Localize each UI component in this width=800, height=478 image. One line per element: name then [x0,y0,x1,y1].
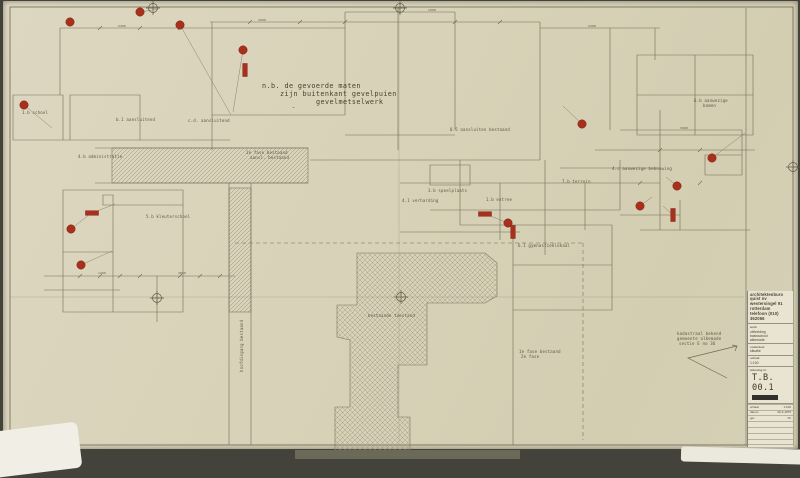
revision-row-label: schaal [750,406,759,409]
drawing-label: 6.1 gymnastieklokaal [518,244,570,249]
drawing-labels: b.1 aansluitendc.d. aansluitend1.b schoo… [0,0,800,461]
schaal-value: 1:100 [750,361,791,365]
schaal-field: schaal 1:100 [748,356,793,368]
drawing-label: 1.b school [22,111,48,116]
drawing-label: 1800 [428,8,436,13]
drawing-label: 4.c aanwezige bebouwing [612,167,672,172]
drawing-label: 3600 [258,18,266,23]
drawing-label: hoofdingang bestaand [240,320,245,372]
drawing-label: 5.b kleuterschool [146,215,190,220]
drawing-label: 2e fase [521,355,539,360]
measurement-note: n.b. de gevoerde maten zijn buitenkant g… [262,82,502,114]
title-block-dark-chip [752,395,778,400]
drawing-label: 0.5 aansluiten bestaand [450,128,510,133]
drawing-label: 1.b entree [486,198,512,203]
werk-field: werk uitbreiding basisschool alkemade [748,324,793,344]
werk-value: alkemade [750,338,791,342]
drawing-label: 2400 [588,24,596,29]
torn-corner-bottom-right [681,446,800,464]
drawing-label: aansl. bestaand [250,156,289,161]
note-line: zijn buitenkant gevelpuien [280,90,502,98]
revision-row-value: hb [788,417,791,420]
drawing-label: 1200 [98,271,106,276]
drawing-label: c.d. aansluitend [188,119,230,124]
architect-firm-block: architektenburo quist nv westersingel 91… [748,291,793,324]
note-line: gevelmetselwerk [316,98,502,106]
drawing-label: 3600 [680,126,688,131]
drawing-label: bestaande toestand [368,314,415,319]
drawing-label: 7.b terrein [562,180,591,185]
onderdeel-value: situatie [750,349,791,353]
note-ditto-mark: ″ [292,106,502,114]
revision-row-value: 1:100 [783,406,791,409]
drawing-label: 4800 [178,271,186,276]
revision-row-value: 26-3-1975 [777,411,791,414]
title-block: architektenburo quist nv westersingel 91… [747,291,793,447]
drawing-label: bomen [703,104,716,109]
firm-line: telefoon (010) 362066 [750,312,791,322]
revision-row-label: get. [750,417,755,420]
drawing-label: 2400 [118,24,126,29]
onderdeel-field: onderdeel situatie [748,344,793,356]
drawing-number-field: tekening nr. T.B. 00.1 [748,367,793,404]
drawing-label: 4.1 verharding [402,199,439,204]
drawing-label: b.1 aansluitend [116,118,155,123]
torn-corner-bottom-left [0,422,82,478]
drawing-label: 4.b administratie [78,155,122,160]
scan-background-strip [295,450,520,459]
drawing-label: 3.b speelplaats [428,189,467,194]
drawing-number: T.B. 00.1 [750,372,791,394]
drawing-label: sectie E no 36 [679,342,716,347]
revision-row-label: datum [750,411,758,414]
scanned-drawing-sheet: b.1 aansluitendc.d. aansluitend1.b schoo… [0,0,800,461]
note-line: n.b. de gevoerde maten [262,82,502,90]
